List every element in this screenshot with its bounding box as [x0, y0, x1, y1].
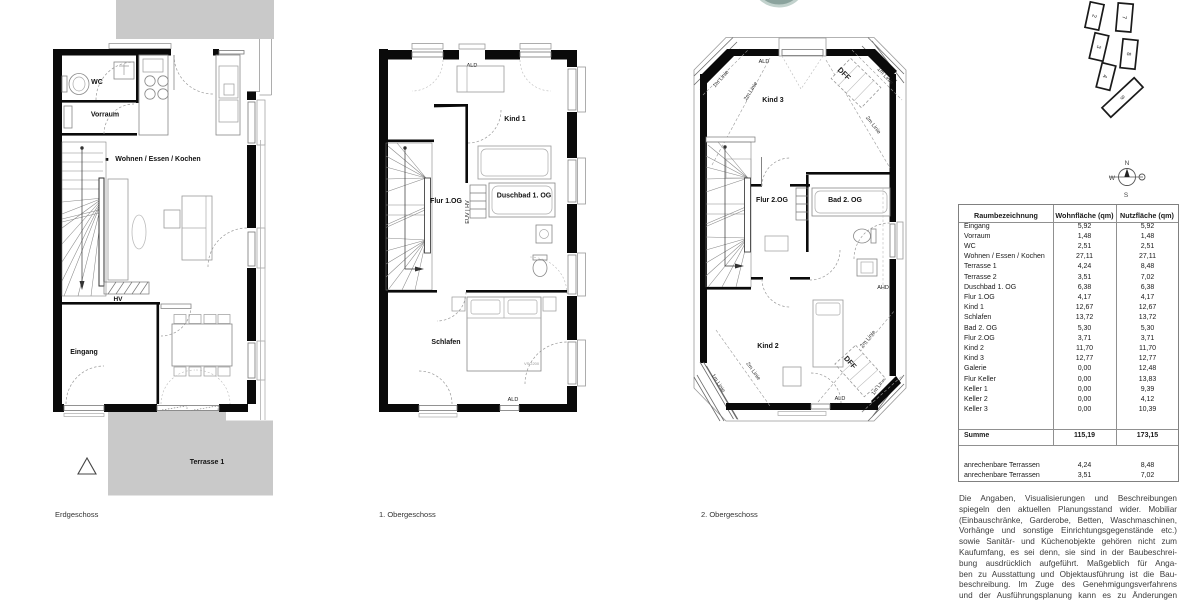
svg-text:2m Linie: 2m Linie [864, 115, 882, 135]
svg-text:2. Obergeschoss: 2. Obergeschoss [701, 510, 758, 519]
svg-text:Wohnen / Essen / Kochen: Wohnen / Essen / Kochen [115, 156, 200, 163]
svg-text:EUV | HV: EUV | HV [465, 200, 471, 224]
svg-text:Eingang: Eingang [70, 349, 98, 356]
svg-text:WC: WC [91, 79, 103, 86]
svg-text:Flur 1.OG: Flur 1.OG [430, 198, 462, 205]
svg-text:Terrasse 1: Terrasse 1 [190, 459, 225, 466]
svg-text:S: S [1124, 192, 1129, 199]
svg-text:Erdgeschoss: Erdgeschoss [55, 510, 99, 519]
svg-text:N: N [1125, 160, 1130, 167]
svg-text:ALD: ALD [835, 396, 846, 402]
svg-text:Kind 3: Kind 3 [762, 97, 783, 104]
svg-text:Vorraum: Vorraum [91, 112, 119, 119]
svg-text:2m Linie: 2m Linie [859, 329, 877, 349]
svg-text:Duschbad 1. OG: Duschbad 1. OG [497, 193, 552, 200]
svg-text:Schlafen: Schlafen [431, 339, 460, 346]
svg-text:Kind 2: Kind 2 [757, 343, 778, 350]
svg-text:2m Linie: 2m Linie [744, 361, 761, 381]
svg-text:1m Linie: 1m Linie [710, 373, 726, 394]
svg-text:2m Linie: 2m Linie [743, 81, 759, 102]
svg-text:VSG200: VSG200 [524, 361, 540, 366]
svg-text:Bad 2. OG: Bad 2. OG [828, 197, 862, 204]
svg-text:HV: HV [113, 296, 123, 303]
svg-text:1. Obergeschoss: 1. Obergeschoss [379, 510, 436, 519]
svg-text:ALD: ALD [508, 397, 519, 403]
svg-text:Flur 2.OG: Flur 2.OG [756, 197, 788, 204]
svg-text:Kind 1: Kind 1 [504, 116, 525, 123]
svg-text:W: W [1109, 175, 1116, 182]
